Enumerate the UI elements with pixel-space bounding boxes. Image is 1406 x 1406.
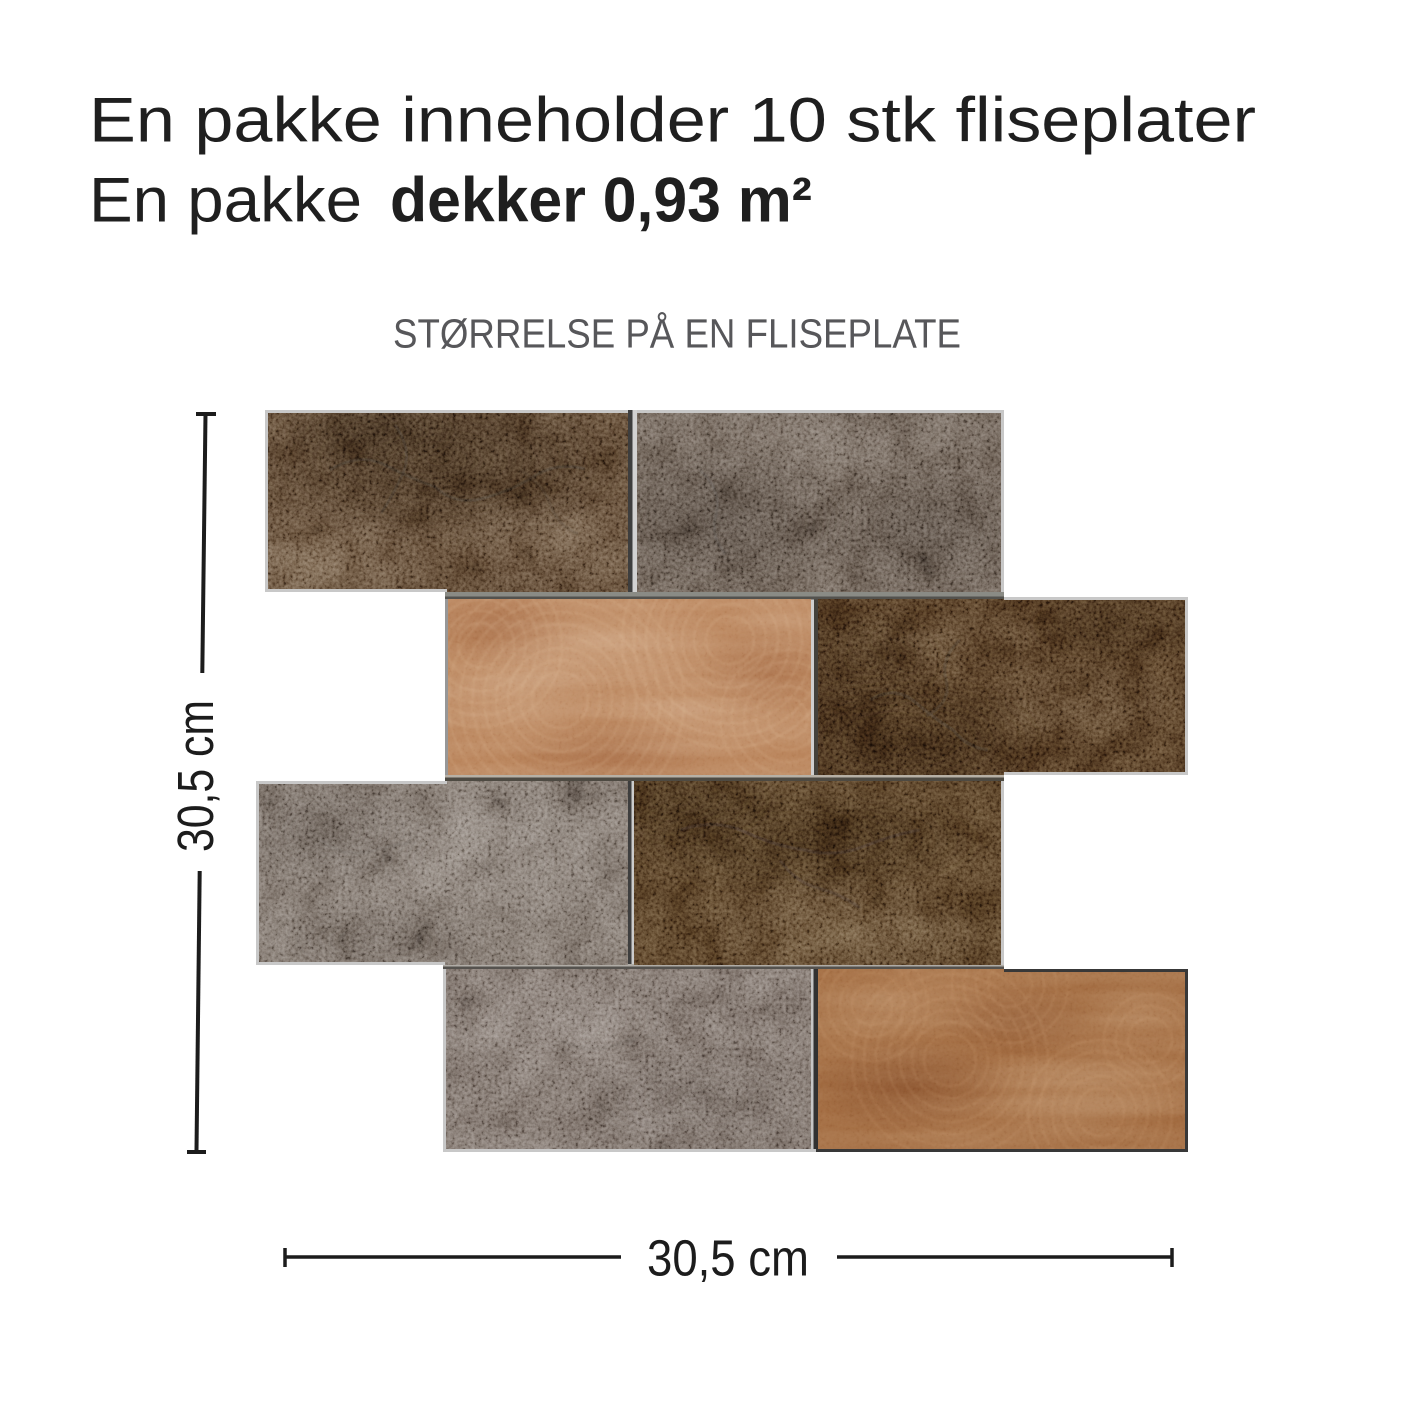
svg-text:30,5 cm: 30,5 cm (647, 1230, 809, 1287)
svg-text:En pakke inneholder 10 stk fli: En pakke inneholder 10 stk fliseplater (89, 86, 1256, 156)
svg-text:En pakke: En pakke (89, 166, 362, 236)
svg-text:dekker 0,93 m²: dekker 0,93 m² (390, 166, 812, 236)
svg-text:30,5 cm: 30,5 cm (167, 700, 224, 852)
svg-text:STØRRELSE PÅ EN FLISEPLATE: STØRRELSE PÅ EN FLISEPLATE (393, 311, 961, 357)
